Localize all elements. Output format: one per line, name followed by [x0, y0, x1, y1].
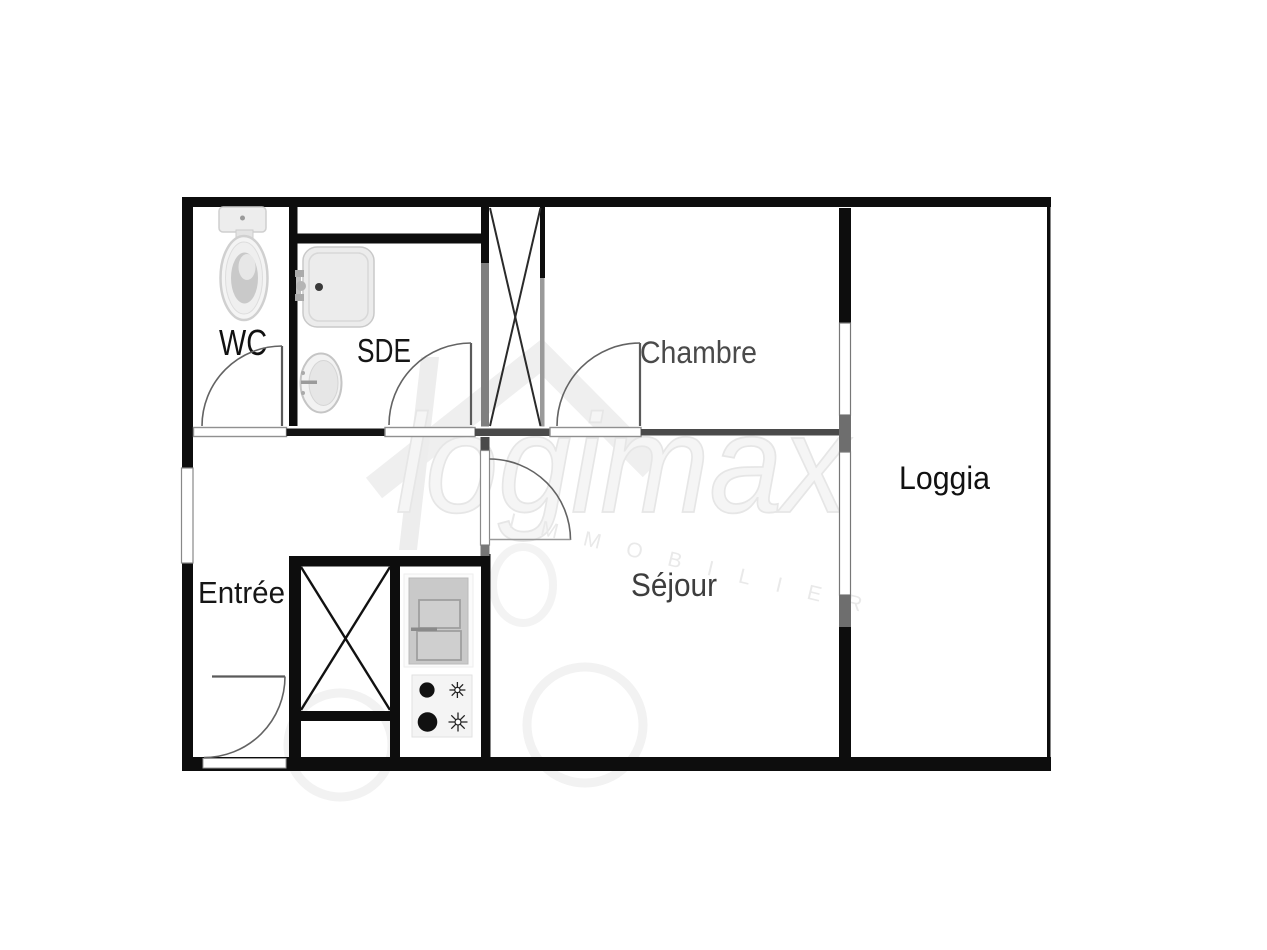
svg-text:logimax: logimax: [396, 385, 853, 542]
svg-text:Loggia: Loggia: [899, 460, 990, 496]
svg-text:Séjour: Séjour: [631, 567, 717, 603]
svg-text:Chambre: Chambre: [640, 334, 757, 370]
svg-text:SDE: SDE: [357, 332, 411, 369]
svg-text:Entrée: Entrée: [198, 576, 285, 610]
